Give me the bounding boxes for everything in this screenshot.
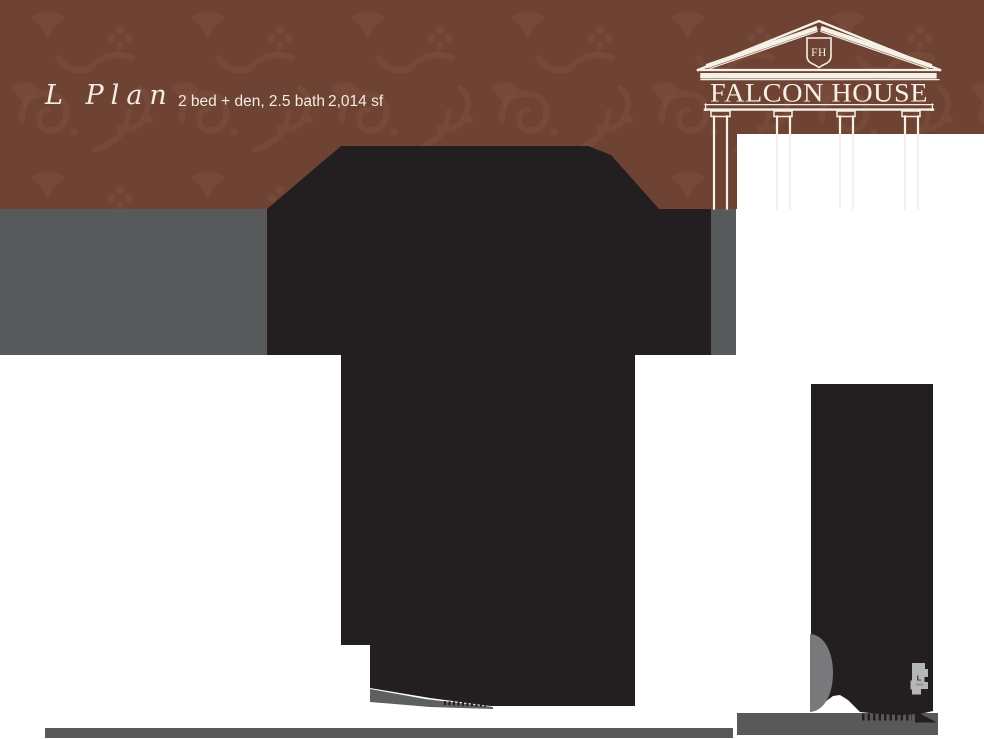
logo-monogram: FH — [811, 47, 827, 59]
logo-wordmark: FALCON HOUSE — [710, 78, 928, 108]
plan-area: 2,014 sf — [328, 93, 383, 110]
footer-bar-left — [45, 728, 733, 738]
keyplan-label: L — [917, 674, 922, 683]
plan-specs: 2 bed + den, 2.5 bath — [178, 93, 325, 110]
plan-title: L Plan — [45, 82, 174, 109]
floorplan-main-silhouette — [267, 146, 711, 706]
floorplan-brochure-page: L FH FALCON HOUSE — [0, 0, 984, 739]
keyplan-microtext — [916, 684, 924, 686]
